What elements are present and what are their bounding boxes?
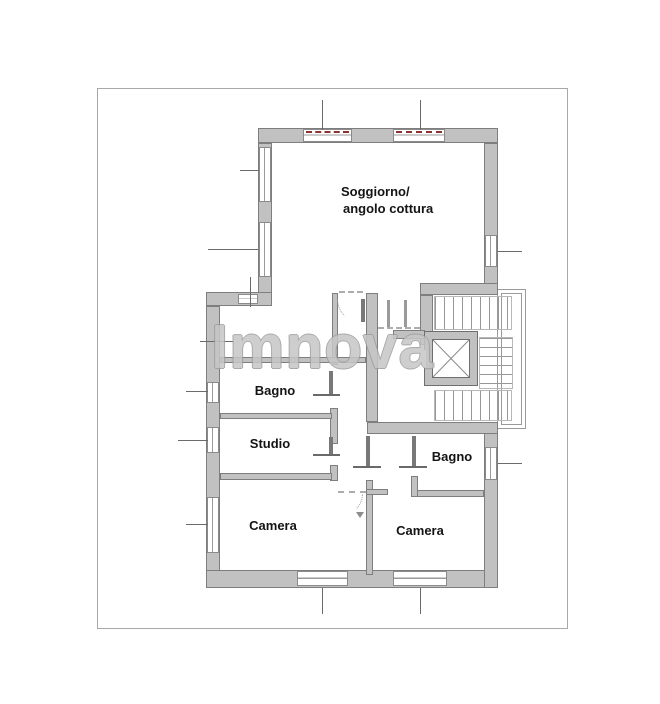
wall-bagno-right-jamb (411, 476, 418, 497)
window-bagno-right (485, 447, 497, 480)
wall-right-upper (484, 143, 498, 295)
window-soggiorno-left-1 (259, 147, 271, 202)
dimension-tick (178, 440, 208, 441)
opening-hall-bottom (338, 491, 366, 493)
dimension-tick (322, 100, 323, 130)
dimension-tick (322, 588, 323, 614)
door-jamb-camera-right (353, 466, 381, 468)
window-bagno-left (207, 382, 219, 403)
dimension-tick (420, 100, 421, 130)
wall-studio-camera-divider (220, 473, 332, 480)
wall-top-exterior (258, 128, 498, 143)
door-jamb-bagno-left (313, 394, 340, 396)
wall-camera-divider-stub (366, 489, 388, 495)
dimension-tick (186, 524, 208, 525)
stair-flight-right (479, 337, 513, 389)
dimension-tick (498, 251, 522, 252)
wall-stairwell-bottom (367, 422, 498, 434)
window-step-wall (238, 294, 258, 304)
dimension-tick (240, 170, 259, 171)
room-label-soggiorno-line1: Soggiorno/ (341, 184, 410, 199)
room-label-camera-right: Camera (390, 523, 450, 538)
door-swing-arrow (356, 512, 364, 518)
window-top-2 (393, 129, 445, 142)
dimension-tick (420, 588, 421, 614)
room-label-bagno-left: Bagno (247, 383, 303, 398)
door-leaf-bagno-right (412, 436, 416, 466)
dimension-tick (498, 463, 522, 464)
window-red-marker (306, 131, 349, 133)
door-leaf-studio (329, 437, 333, 454)
dimension-tick (250, 277, 251, 307)
window-bottom-1 (297, 571, 348, 586)
wall-bagno-studio-divider (220, 413, 332, 419)
wall-bagno-right-bottom (411, 490, 484, 497)
door-jamb-studio (313, 454, 340, 456)
room-label-soggiorno-line2: angolo cottura (343, 201, 433, 216)
dimension-tick (208, 249, 258, 250)
window-soggiorno-right (485, 235, 497, 267)
stair-flight-lower (434, 390, 512, 421)
window-bottom-2 (393, 571, 447, 586)
opening-hall-top (339, 291, 363, 293)
floor-plan-canvas: Imnova Soggiorno/ angolo cottura Bagno S… (0, 0, 660, 704)
room-label-studio: Studio (242, 436, 298, 451)
window-top-1 (303, 129, 352, 142)
watermark: Imnova (211, 312, 461, 383)
dimension-tick (186, 391, 208, 392)
room-label-camera-left: Camera (243, 518, 303, 533)
wall-stairwell-top (420, 283, 498, 295)
window-red-marker (396, 131, 442, 133)
window-soggiorno-left-2 (259, 222, 271, 277)
room-label-bagno-right: Bagno (424, 449, 480, 464)
window-studio (207, 427, 219, 453)
wall-bottom-exterior (206, 570, 498, 588)
door-jamb-bagno-right (399, 466, 427, 468)
window-camera-left (207, 497, 219, 553)
door-leaf-camera-right (366, 436, 370, 466)
